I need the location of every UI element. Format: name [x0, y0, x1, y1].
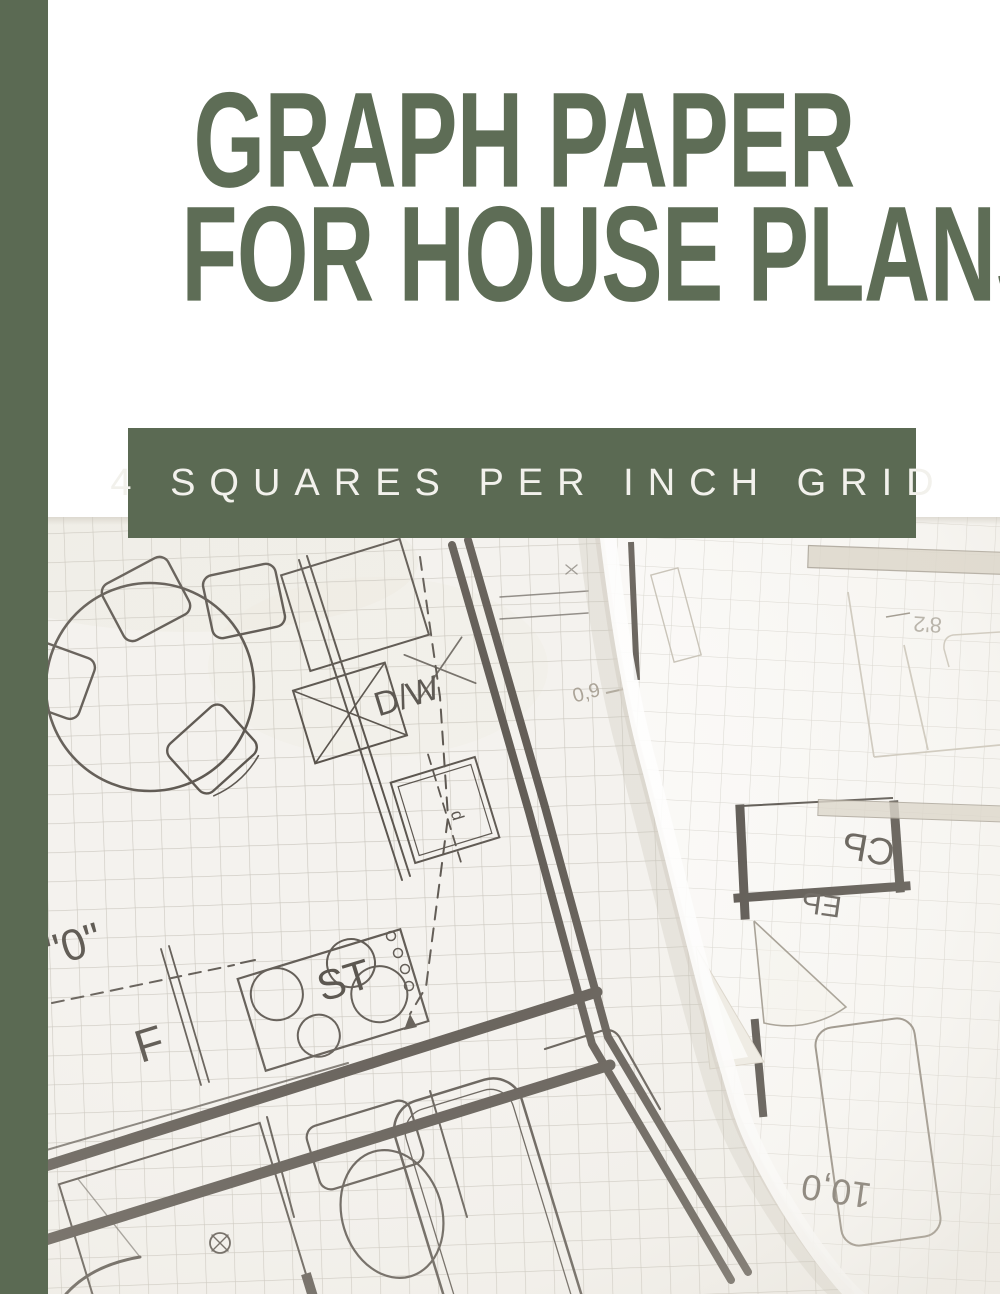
book-cover: GRAPH PAPER FOR HOUSE PLANS 4 SQUARES PE…: [0, 0, 1000, 1294]
blueprint-photo-illustration: D/W ST F "0" d 0,9: [48, 517, 1000, 1294]
title-line-2: FOR HOUSE PLANS: [181, 195, 866, 316]
left-accent-bar: [0, 0, 48, 1294]
kitchen-plan-sheet: D/W ST F "0" d 0,9: [48, 517, 1000, 1294]
title-block: GRAPH PAPER FOR HOUSE PLANS: [48, 84, 1000, 312]
cover-photo: D/W ST F "0" d 0,9: [48, 517, 1000, 1294]
subtitle-banner: 4 SQUARES PER INCH GRID: [128, 428, 916, 538]
subtitle-text: 4 SQUARES PER INCH GRID: [96, 462, 947, 505]
